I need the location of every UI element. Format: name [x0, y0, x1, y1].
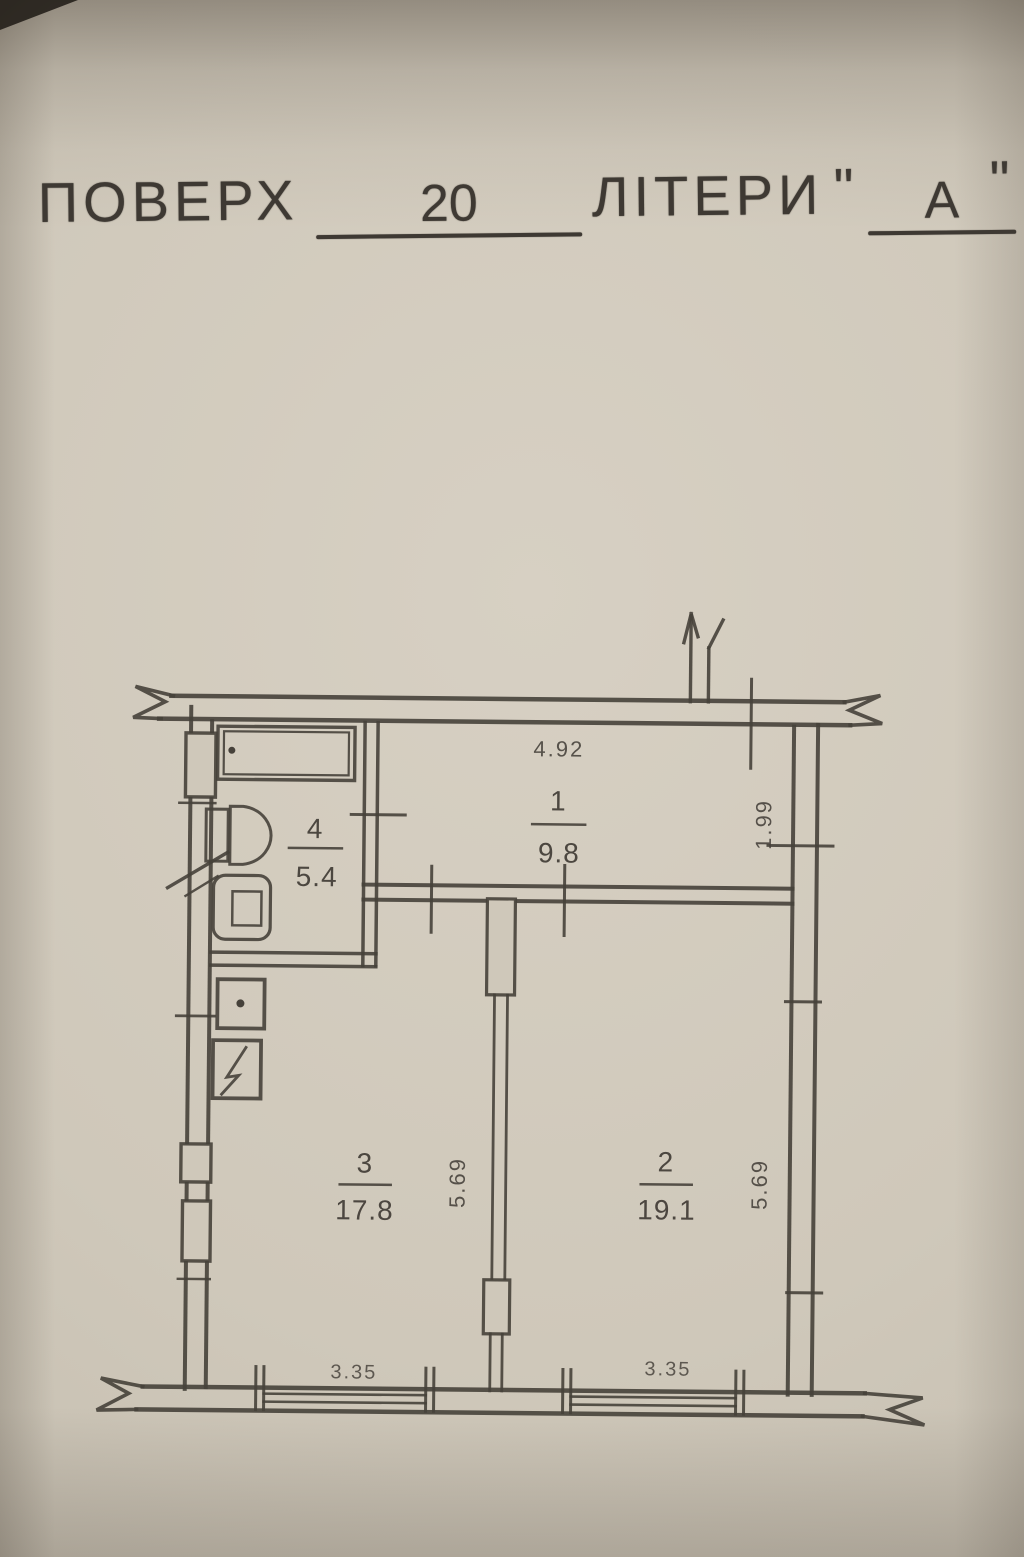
middle-wall — [483, 899, 516, 1391]
stove — [217, 979, 264, 1028]
dim-hall-width: 4.92 — [533, 736, 584, 761]
dim-room3-width: 3.35 — [330, 1361, 377, 1383]
bathtub — [218, 726, 356, 780]
room3-door-tick — [431, 866, 432, 932]
bathtub-drain — [228, 747, 235, 754]
room3-label: 3 17.8 — [335, 1147, 394, 1226]
room3-number: 3 — [356, 1148, 373, 1179]
dim-hall-depth: 1.99 — [751, 799, 776, 850]
middle-wall-jamb-bottom — [483, 1280, 510, 1334]
vent-shaft-arrow — [683, 614, 723, 702]
room2-door-tick — [564, 865, 565, 935]
bathroom-walls — [211, 721, 406, 967]
wall-break-top-right — [844, 695, 882, 725]
room4-area: 5.4 — [296, 861, 338, 892]
dim-room2-height: 5.69 — [746, 1159, 771, 1210]
room2-number: 2 — [657, 1146, 674, 1177]
left-wall-pier — [181, 1144, 211, 1182]
top-wall — [133, 686, 882, 725]
electric-panel — [213, 1040, 262, 1098]
room4-label: 4 5.4 — [289, 813, 343, 893]
wall-break-top-left — [133, 686, 173, 718]
room3-area: 17.8 — [335, 1194, 394, 1226]
left-wall-break — [168, 852, 228, 889]
room2-area: 19.1 — [637, 1194, 696, 1226]
bottom-wall — [96, 1365, 924, 1425]
room1-area: 9.8 — [538, 837, 580, 868]
left-wall-pier — [182, 1201, 211, 1261]
room1-number: 1 — [550, 785, 567, 816]
floor-plan-svg: 1 9.8 4 5.4 3 17.8 2 19.1 — [0, 0, 1024, 1557]
sink — [213, 875, 271, 940]
entrance-door-tick — [751, 679, 752, 768]
wall-break-bottom-right — [862, 1393, 924, 1425]
dim-tick — [768, 845, 833, 846]
stove-burner-dot — [236, 999, 244, 1007]
dim-room2-width: 3.35 — [644, 1358, 691, 1380]
toilet — [206, 806, 272, 865]
room2-label: 2 19.1 — [637, 1146, 696, 1226]
scanned-floor-plan-page: ПОВЕРХ 20 ЛІТЕРИ " А " — [0, 0, 1024, 1557]
wall-break-bottom-left — [97, 1378, 143, 1410]
bathroom-door-tick — [351, 814, 405, 815]
lightning-symbol — [222, 1047, 246, 1094]
room4-number: 4 — [307, 813, 324, 844]
dim-room3-height: 5.69 — [444, 1157, 469, 1208]
room1-label: 1 9.8 — [532, 785, 586, 869]
hall-bottom-wall — [363, 864, 793, 938]
left-wall-pier — [185, 733, 216, 797]
middle-wall-jamb-top — [487, 899, 516, 995]
